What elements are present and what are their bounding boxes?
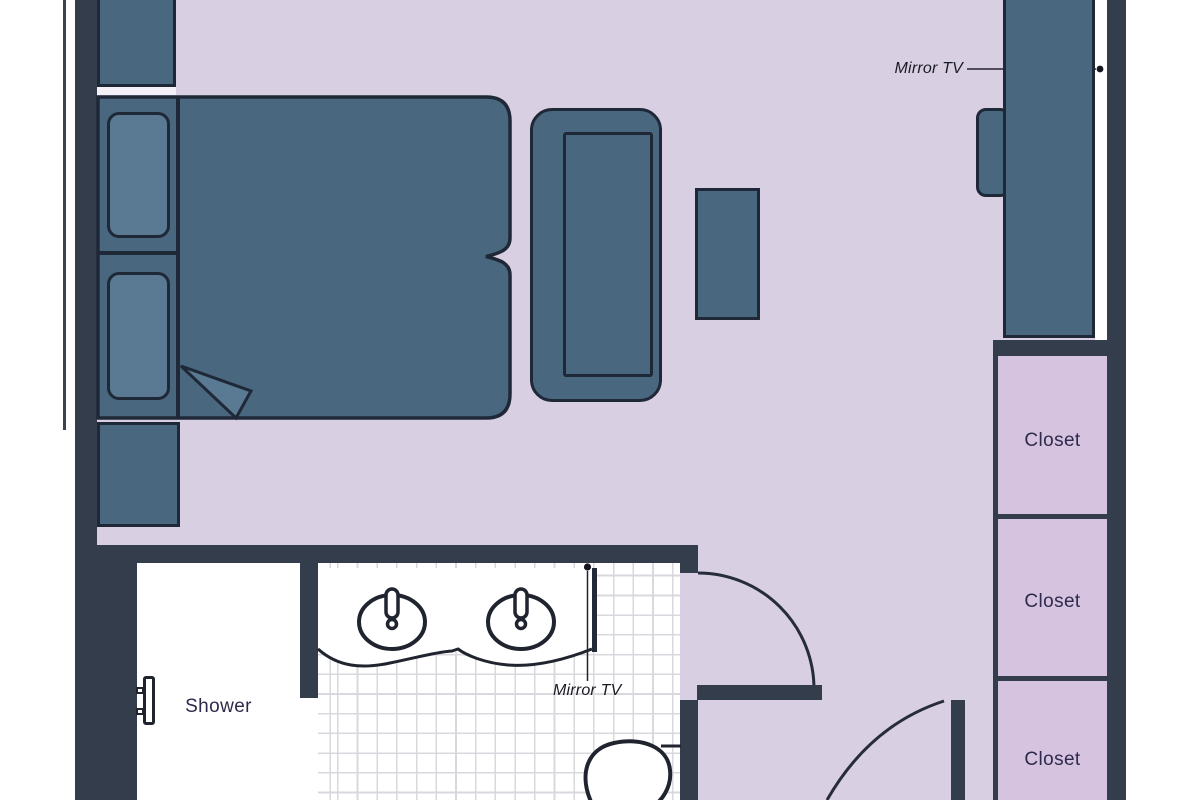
bathroom-door-leaf	[697, 685, 822, 700]
nightstand-bottom	[97, 422, 180, 527]
shower-left-wall	[97, 563, 137, 800]
sofa-seat	[563, 132, 653, 377]
vanity-right-edge	[592, 568, 597, 652]
entry-door-leaf	[951, 700, 965, 800]
closet-2-label: Closet	[998, 591, 1107, 613]
bathroom-east-wall-lower	[680, 700, 698, 800]
floor-plan: Shower Closet Closet Closet Mirror TV Mi…	[0, 0, 1200, 800]
right-wall	[1107, 0, 1126, 800]
closet-3	[998, 681, 1107, 800]
nightstand-top	[97, 0, 176, 87]
bathroom-east-wall-upper	[680, 545, 698, 573]
bedroom-bathroom-wall	[97, 545, 698, 563]
wardrobe-niche-gap	[1095, 0, 1107, 340]
left-outer-line	[63, 0, 66, 430]
pillow-bottom	[107, 272, 170, 400]
shower-label: Shower	[137, 696, 300, 718]
bed-pillow-divider-h	[98, 251, 180, 255]
mirror-tv-bottom-label: Mirror TV	[553, 682, 621, 700]
vanity-counter	[318, 568, 592, 652]
closet-3-label: Closet	[998, 749, 1107, 771]
left-wall	[75, 0, 97, 800]
mirror-tv-top-label: Mirror TV	[895, 60, 963, 78]
shower-entry-gap	[300, 698, 318, 800]
coffee-table	[695, 188, 760, 320]
shower-floor	[137, 563, 300, 800]
bed-headboard-gap	[97, 87, 176, 95]
closet-1-label: Closet	[998, 430, 1107, 452]
shower-right-wall	[300, 563, 318, 698]
wardrobe-mirror-tv-unit	[1003, 0, 1095, 338]
pillow-top	[107, 112, 170, 238]
bed-pillow-divider-v	[176, 97, 180, 418]
